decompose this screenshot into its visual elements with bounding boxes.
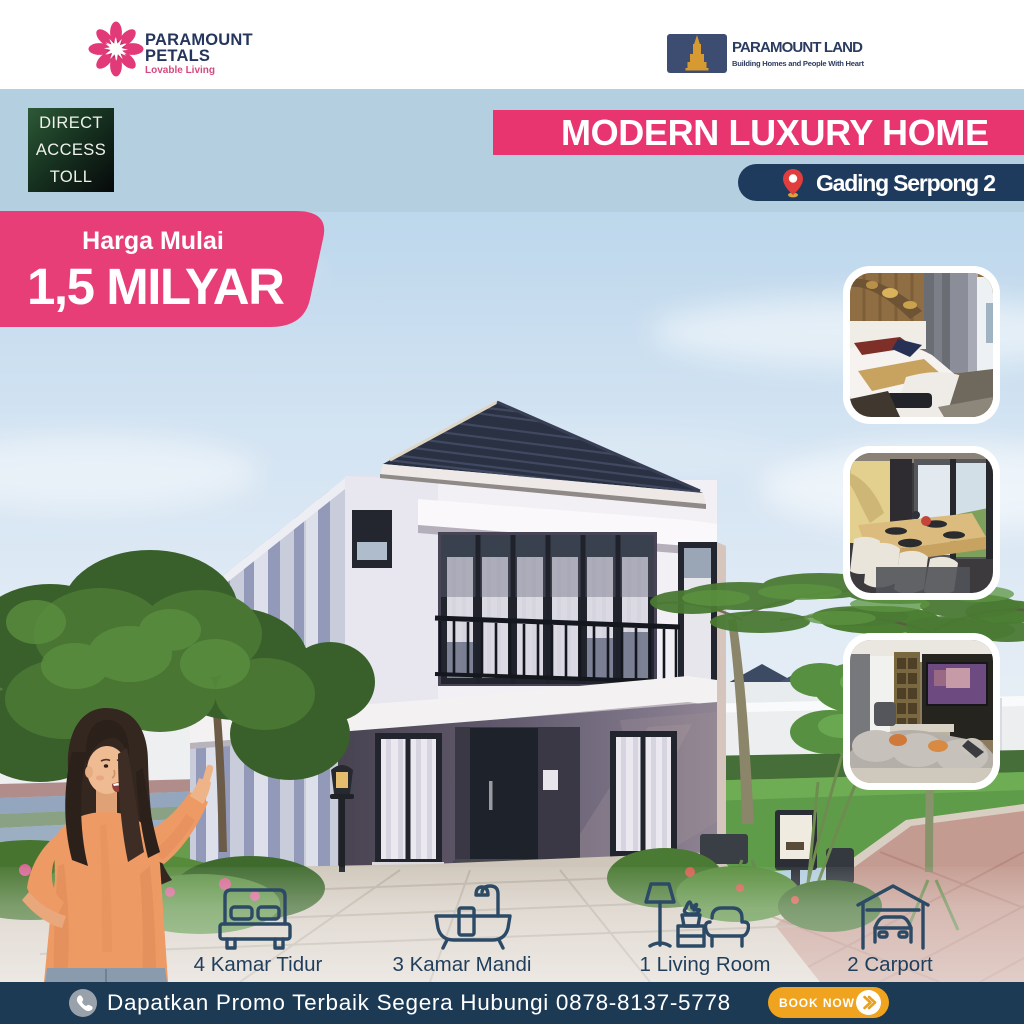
svg-text:Building Homes and People With: Building Homes and People With Heart	[732, 59, 864, 68]
svg-text:PARAMOUNT LAND: PARAMOUNT LAND	[732, 39, 863, 56]
svg-text:Gading Serpong 2: Gading Serpong 2	[816, 170, 996, 196]
svg-text:Harga Mulai: Harga Mulai	[82, 227, 224, 255]
svg-text:1,5 MILYAR: 1,5 MILYAR	[27, 258, 285, 315]
svg-text:Lovable Living: Lovable Living	[145, 65, 215, 76]
svg-text:MODERN LUXURY HOME: MODERN LUXURY HOME	[561, 112, 989, 153]
svg-text:PETALS: PETALS	[145, 47, 210, 65]
